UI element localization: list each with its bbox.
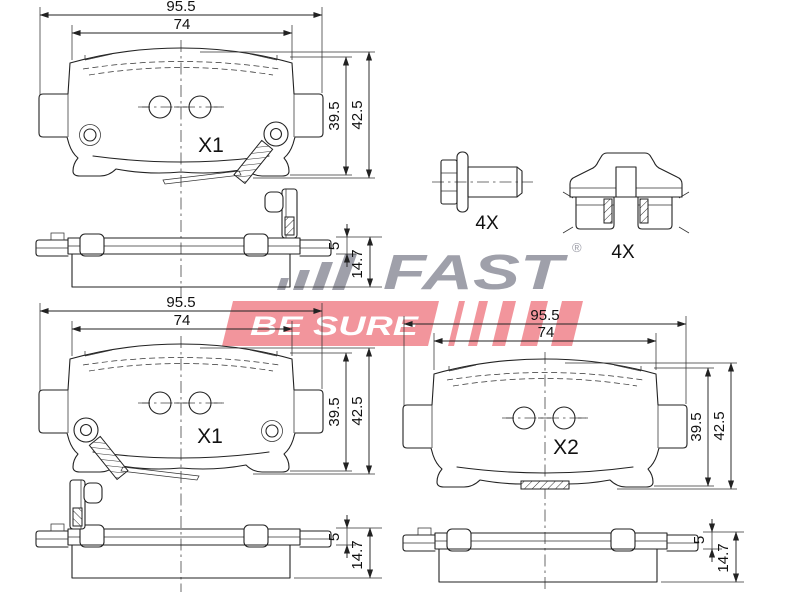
dim-thickness-total-2: 14.7 [349, 540, 366, 569]
retaining-clip-view: 4X [563, 153, 689, 263]
dim-height-friction-3: 39.5 [688, 412, 705, 441]
pad-front-view-1: 95.5 74 39.5 42.5 X1 [39, 0, 375, 184]
fast-logo-bars-icon [277, 254, 357, 290]
dim-width-total-1: 95.5 [166, 0, 195, 15]
dim-height-friction-1: 39.5 [326, 101, 343, 130]
registered-trademark-icon: ® [572, 240, 582, 255]
dim-width-inner-3: 74 [538, 324, 555, 341]
dim-thickness-plate-1: 5 [326, 242, 343, 250]
pad-side-view-3: 5 14.7 [403, 519, 744, 582]
dim-height-total-2: 42.5 [349, 396, 366, 425]
clip-qty-label: 4X [611, 242, 635, 263]
fast-wordmark: FAST [383, 246, 569, 300]
dim-thickness-total-3: 14.7 [715, 543, 732, 572]
bolt-qty-label: 4X [475, 213, 499, 234]
pad-label-2: X1 [197, 425, 223, 448]
pad-bottom-tab [521, 481, 569, 489]
pad-label-1: X1 [198, 134, 224, 157]
dim-width-inner-1: 74 [174, 16, 191, 33]
dim-width-total-2: 95.5 [166, 294, 195, 311]
pad-side-view-2: 5 14.7 [36, 480, 382, 578]
pad-label-3: X2 [553, 436, 579, 459]
pad-side-view-1: 5 14.7 [36, 189, 382, 287]
clip-center-slot [616, 167, 636, 197]
fast-logo: FAST ® BE SURE [222, 240, 583, 346]
dim-width-total-3: 95.5 [530, 307, 559, 324]
dim-thickness-plate-2: 5 [326, 533, 343, 541]
dim-height-friction-2: 39.5 [326, 397, 343, 426]
dim-width-inner-2: 74 [174, 312, 191, 329]
bolt-view: 4X [441, 152, 522, 234]
be-sure-tagline: BE SURE [250, 311, 419, 341]
brake-pad-technical-drawing: FAST ® BE SURE 95.5 74 [0, 0, 800, 596]
dim-thickness-plate-3: 5 [691, 536, 708, 544]
fast-logo-stripes-icon [448, 301, 583, 346]
dim-thickness-total-1: 14.7 [349, 249, 366, 278]
dim-height-total-3: 42.5 [711, 411, 728, 440]
dim-height-total-1: 42.5 [349, 100, 366, 129]
